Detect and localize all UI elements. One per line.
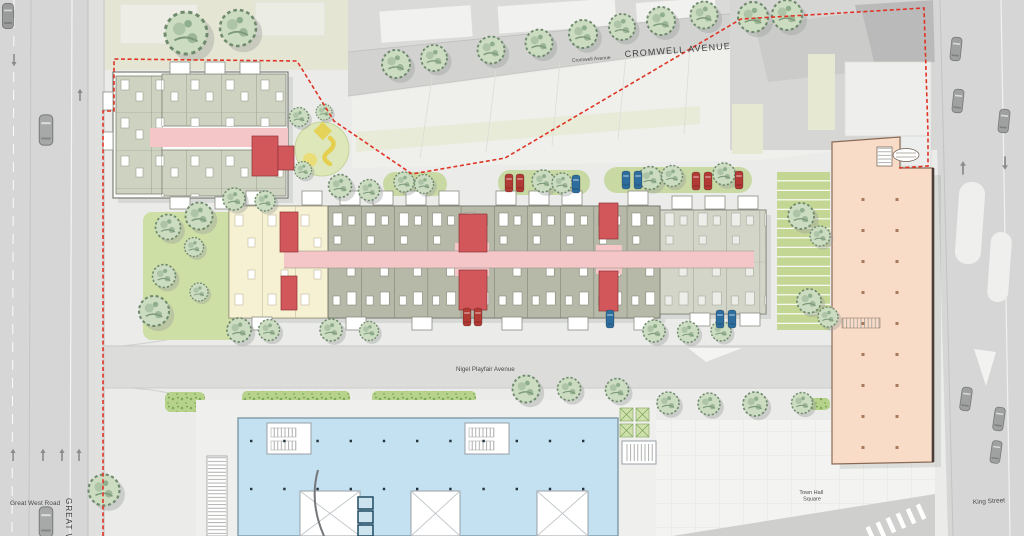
parked-car-gray: [952, 89, 965, 113]
corridor: [284, 251, 754, 268]
parked-car-red: [463, 308, 471, 326]
void-core: [537, 491, 588, 536]
parked-car-blue: [606, 310, 614, 328]
commercial-floor-plate: [832, 137, 933, 464]
site-plan-drawing: CROMWELL AVENUE Cromwell Avenue Nigel Pl…: [0, 0, 1024, 536]
residential-block-north: [103, 62, 294, 209]
parked-car-gray: [2, 3, 13, 28]
lift-bank: [358, 497, 373, 536]
stair-core: [459, 214, 487, 252]
void-core: [411, 491, 460, 536]
great-west-road-label: Great West Road: [10, 500, 60, 507]
stair-core: [599, 203, 618, 239]
stair-run: [842, 318, 880, 328]
parked-car-red: [704, 172, 712, 190]
stair-core: [280, 212, 298, 252]
king-street: [933, 0, 1024, 536]
parked-car-blue: [622, 171, 630, 189]
residential-terrace: [229, 191, 771, 330]
parked-car-gray: [998, 109, 1011, 133]
commercial-building: [832, 136, 941, 469]
stair-core: [252, 136, 278, 176]
great-west-road: [0, 0, 105, 536]
parked-car-red: [516, 174, 524, 192]
great-west-road-caps-label: GREAT WEST ROAD: [64, 498, 73, 536]
void-core: [300, 491, 360, 536]
stair-core: [599, 271, 618, 311]
parked-car-gray: [39, 115, 53, 146]
parked-car-red: [692, 172, 700, 190]
stair-core: [278, 146, 294, 170]
feature-stair: [893, 149, 919, 162]
parked-car-red: [474, 308, 482, 326]
stair-core: [281, 276, 297, 310]
site-plan-page: CROMWELL AVENUE Cromwell Avenue Nigel Pl…: [0, 0, 1024, 536]
parked-car-red: [735, 171, 743, 189]
parked-car-blue: [634, 171, 642, 189]
parked-car-blue: [716, 310, 724, 328]
nigel-playfair-avenue-label: Nigel Playfair Avenue: [456, 366, 515, 373]
stair-core: [459, 270, 487, 310]
parked-car-red: [505, 174, 513, 192]
parked-car-blue: [728, 310, 736, 328]
parked-car-gray: [39, 507, 53, 536]
parked-car-blue: [572, 175, 580, 193]
town-hall-building: [196, 400, 656, 536]
parked-car-gray: [950, 37, 963, 61]
